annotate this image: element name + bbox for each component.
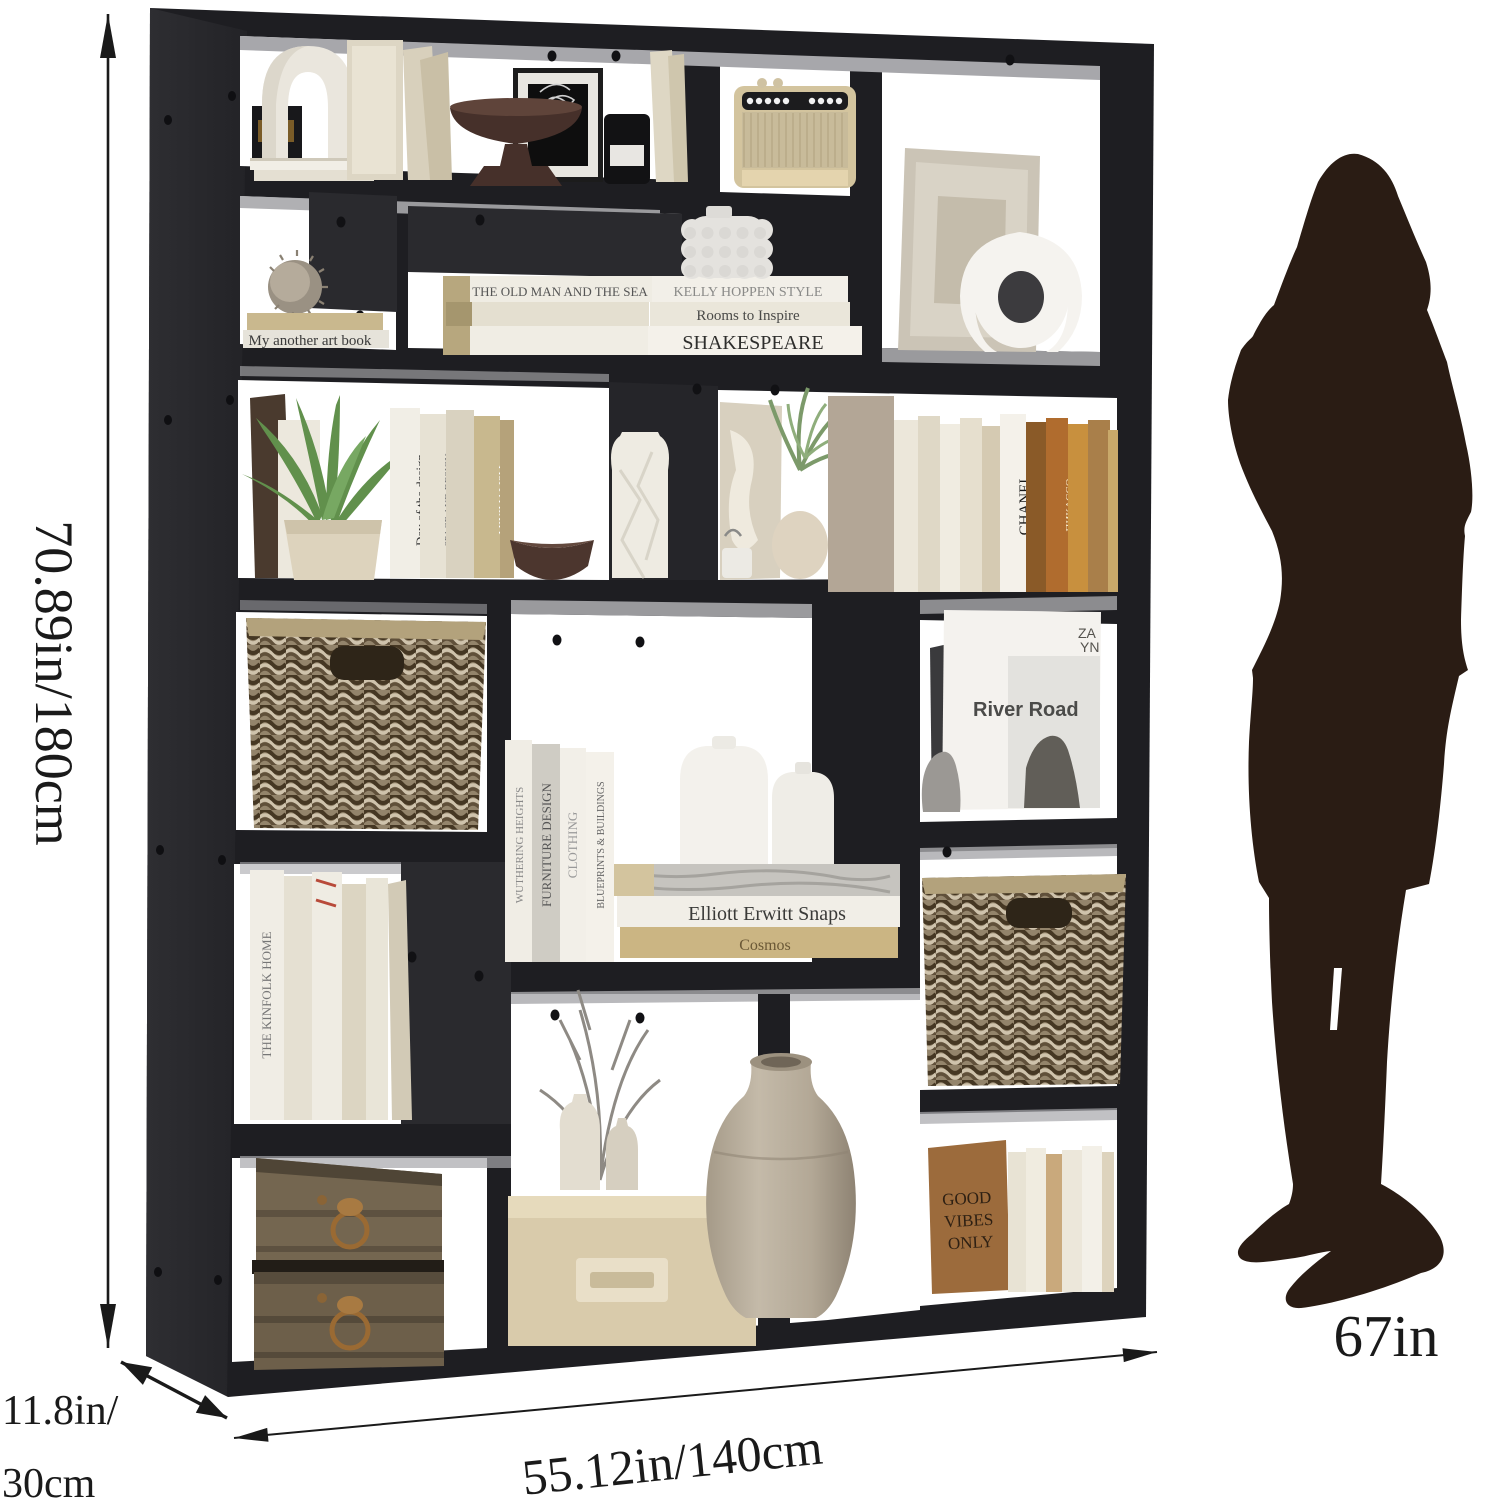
svg-text:FURNITURE DESIGN: FURNITURE DESIGN xyxy=(539,782,554,906)
svg-text:CLOTHING: CLOTHING xyxy=(565,812,580,878)
svg-text:BLUEPRINTS & BUILDINGS: BLUEPRINTS & BUILDINGS xyxy=(596,781,607,908)
svg-text:GOOD: GOOD xyxy=(942,1188,992,1210)
svg-text:My another art book: My another art book xyxy=(249,333,372,349)
svg-text:WUTHERING HEIGHTS: WUTHERING HEIGHTS xyxy=(514,787,526,903)
svg-text:Rooms to Inspire: Rooms to Inspire xyxy=(696,308,800,324)
svg-text:11.8in/: 11.8in/ xyxy=(2,1388,119,1434)
svg-text:THE OLD MAN AND THE SEA: THE OLD MAN AND THE SEA xyxy=(472,284,648,299)
svg-text:KELLY HOPPEN STYLE: KELLY HOPPEN STYLE xyxy=(674,285,823,300)
svg-text:70.89in/180cm: 70.89in/180cm xyxy=(24,520,84,845)
svg-text:VIBES: VIBES xyxy=(944,1210,994,1232)
svg-text:ONLY: ONLY xyxy=(947,1232,993,1253)
svg-text:SHAKESPEARE: SHAKESPEARE xyxy=(682,332,823,354)
svg-text:Cosmos: Cosmos xyxy=(739,937,791,954)
svg-text:THE KINFOLK HOME: THE KINFOLK HOME xyxy=(259,931,274,1058)
svg-text:YN: YN xyxy=(1080,639,1099,655)
svg-text:30cm: 30cm xyxy=(2,1461,96,1500)
svg-text:River Road: River Road xyxy=(973,699,1079,721)
svg-text:Elliott Erwitt Snaps: Elliott Erwitt Snaps xyxy=(688,903,846,925)
svg-text:67in: 67in xyxy=(1334,1303,1439,1369)
